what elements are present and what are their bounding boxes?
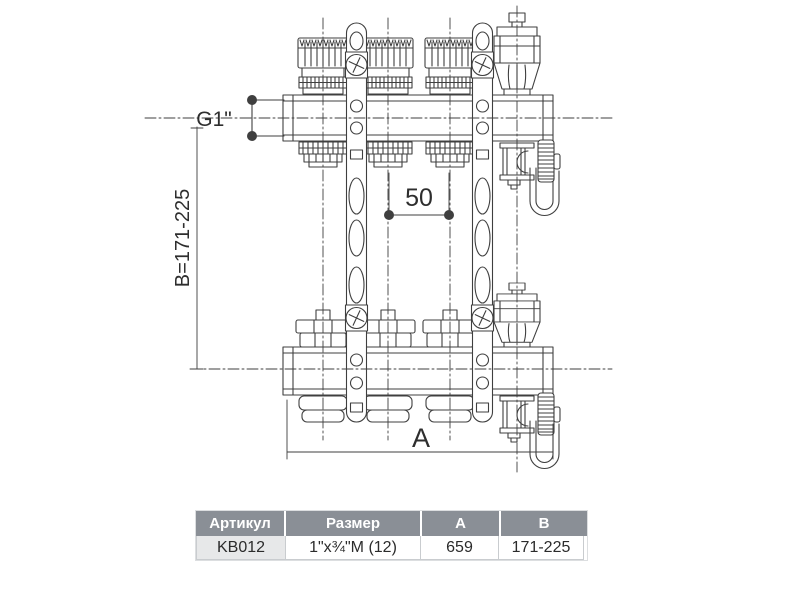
- top-outlet-fittings: [299, 142, 474, 167]
- spacing-dimension: 50: [384, 173, 454, 220]
- header-b: B: [501, 511, 587, 536]
- drain-valve-bottom-icon: [500, 393, 560, 469]
- spec-table-header-row: Артикул Размер A B: [196, 511, 587, 536]
- header-a: A: [422, 511, 501, 536]
- thermostatic-valve-caps: [298, 38, 475, 94]
- spacing-label: 50: [405, 184, 433, 212]
- cell-article: KB012: [196, 536, 286, 560]
- spec-table-data-row: KB012 1"x¾"M (12) 659 171-225: [196, 536, 587, 560]
- spec-table: Артикул Размер A B KB012 1"x¾"M (12) 659…: [196, 511, 587, 560]
- height-label: B=171-225: [172, 189, 194, 287]
- cell-a: 659: [420, 536, 499, 560]
- drain-valve-top-icon: [500, 140, 560, 216]
- cell-b: 171-225: [498, 536, 584, 560]
- manifold-technical-drawing: G1" 50 B=171-225 A: [0, 0, 800, 505]
- header-article: Артикул: [196, 511, 286, 536]
- header-size: Размер: [286, 511, 422, 536]
- length-label: A: [412, 423, 430, 453]
- bottom-manifold-bar: [283, 347, 553, 395]
- bottom-outlet-fittings: [299, 396, 474, 422]
- cell-size: 1"x¾"M (12): [285, 536, 421, 560]
- manifold-drawing-page: G1" 50 B=171-225 A Артикул Размер A B KB…: [0, 0, 800, 600]
- height-dimension: B=171-225: [172, 127, 203, 369]
